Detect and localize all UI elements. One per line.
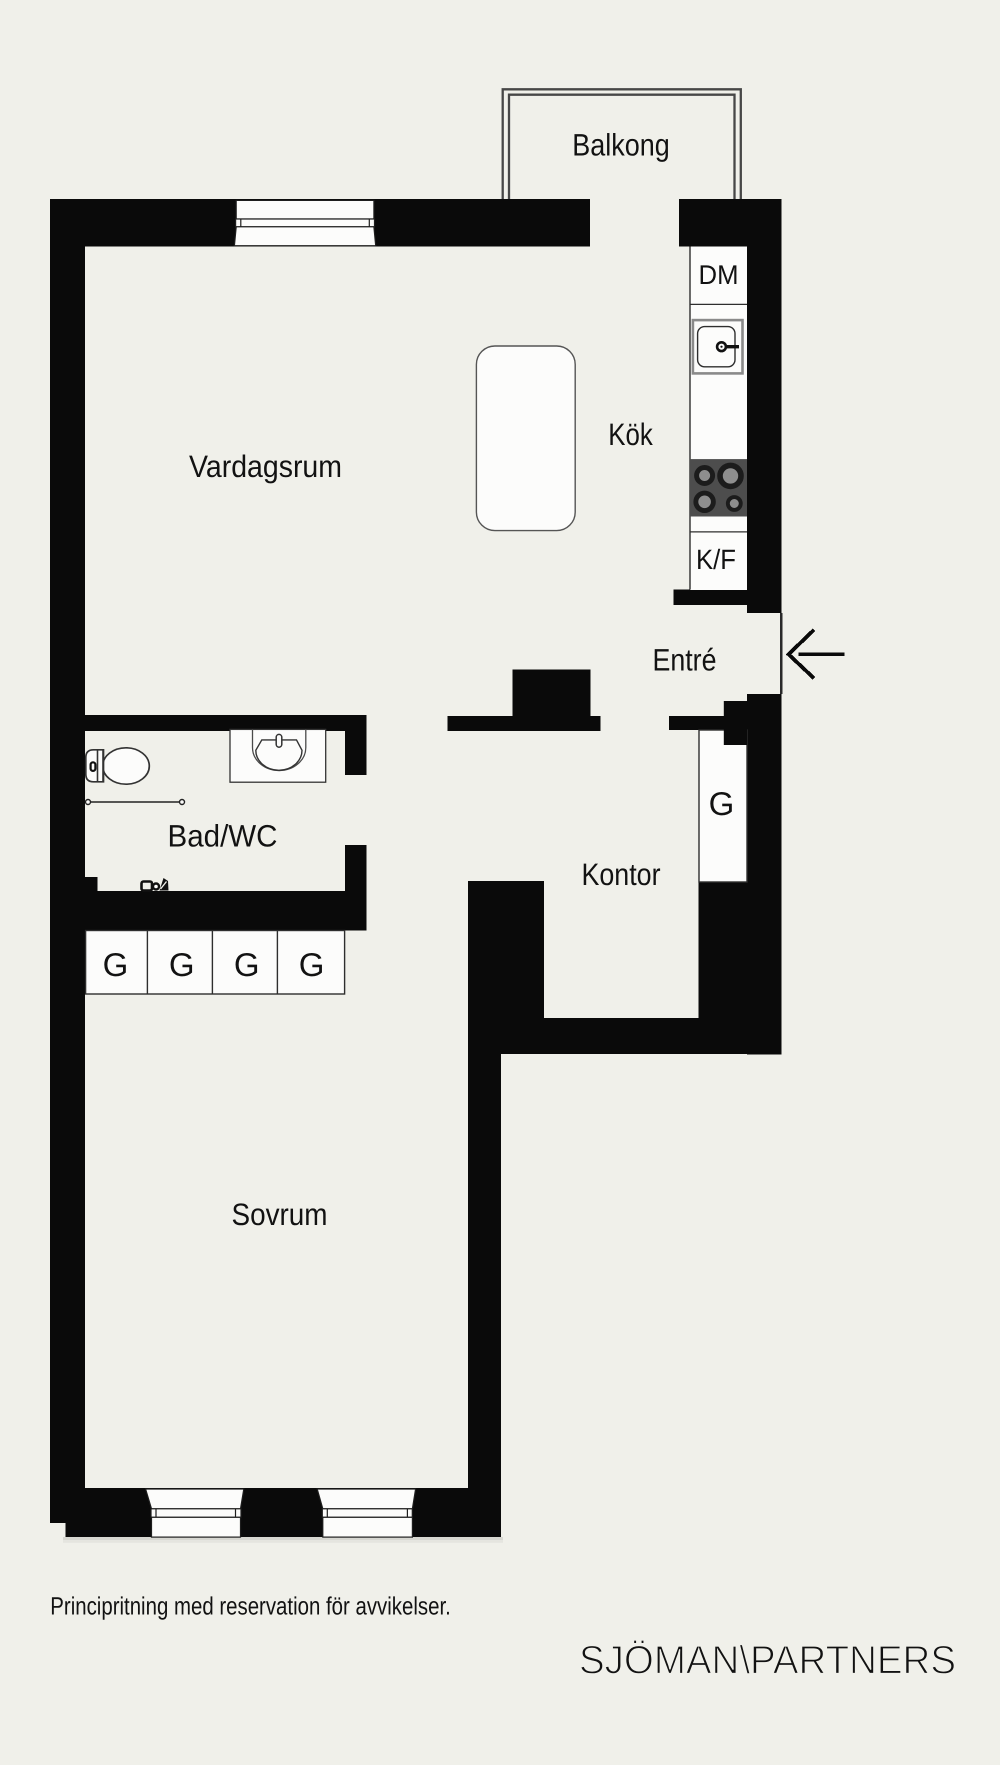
svg-text:G: G: [103, 946, 129, 983]
svg-text:SJÖMAN\PARTNERS: SJÖMAN\PARTNERS: [579, 1639, 956, 1683]
svg-text:G: G: [709, 785, 735, 822]
svg-text:G: G: [299, 946, 325, 983]
svg-text:G: G: [169, 946, 195, 983]
svg-text:K/F: K/F: [696, 544, 736, 575]
svg-text:Principritning med reservation: Principritning med reservation för avvik…: [50, 1593, 451, 1621]
svg-text:DM: DM: [699, 260, 739, 290]
svg-text:Kontor: Kontor: [582, 857, 661, 892]
svg-text:Entré: Entré: [653, 642, 717, 677]
svg-text:G: G: [234, 946, 260, 983]
svg-text:Bad/WC: Bad/WC: [168, 819, 278, 854]
svg-text:Sovrum: Sovrum: [232, 1197, 328, 1232]
svg-text:Balkong: Balkong: [572, 128, 670, 163]
svg-text:Vardagsrum: Vardagsrum: [189, 449, 342, 484]
svg-text:Kök: Kök: [608, 417, 653, 452]
